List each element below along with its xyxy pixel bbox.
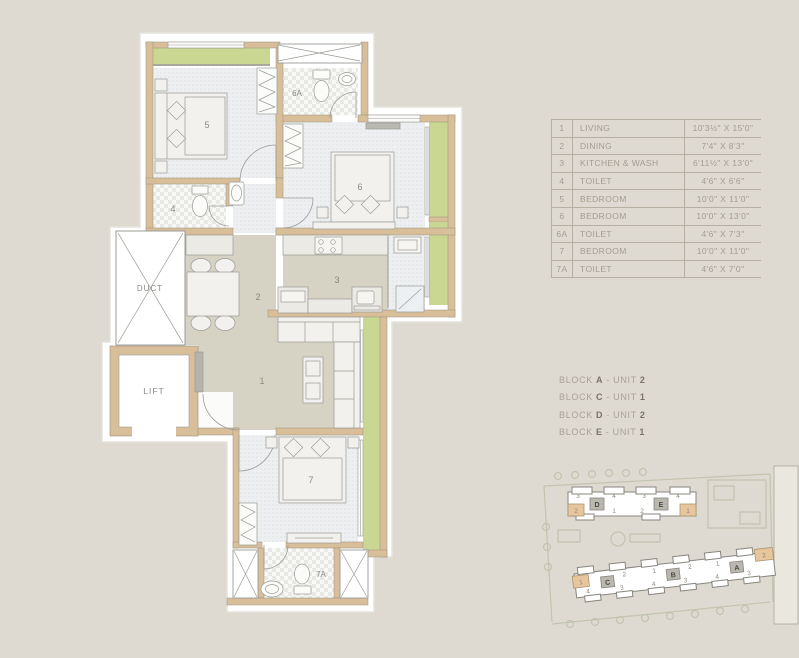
block-sep: - UNIT: [606, 392, 637, 402]
row-name: TOILET: [572, 261, 684, 278]
row-size: 6'11½" X 13'0": [684, 155, 761, 172]
unit-number: 2: [574, 508, 578, 515]
plan-sheet: LIFT DUCT: [0, 0, 799, 658]
dimension-table: 1LIVING10'3½" X 15'0" 2DINING7'4" X 8'3"…: [551, 119, 761, 278]
table-row: 6ATOILET4'6" X 7'3": [551, 225, 761, 243]
table-row: 4TOILET4'6" X 6'6": [551, 172, 761, 190]
row-name: BEDROOM: [572, 208, 684, 225]
row-no: 4: [552, 173, 572, 190]
block-line: BLOCKE- UNIT1: [559, 424, 649, 442]
block-unit: 1: [639, 427, 645, 437]
row-name: DINING: [572, 138, 684, 155]
row-name: BEDROOM: [572, 243, 684, 260]
block-unit: 2: [640, 375, 646, 385]
row-no: 2: [552, 138, 572, 155]
table-row: 6BEDROOM10'0" X 13'0": [551, 207, 761, 225]
row-size: 4'6" X 7'3": [684, 226, 761, 243]
table-row: 2DINING7'4" X 8'3": [551, 137, 761, 155]
label-living: 1: [259, 376, 264, 386]
block-letter-d: D: [594, 502, 599, 509]
unit-number: 2: [640, 508, 644, 515]
label-6a: 6A: [292, 89, 302, 98]
site-plan: 3 4 2 1 3 4 2 1 D E 1: [530, 452, 799, 648]
unit-number: 4: [612, 493, 616, 500]
block-letter: D: [596, 410, 603, 420]
unit-number: 3: [642, 493, 646, 500]
row-no: 7: [552, 243, 572, 260]
row-size: 10'3½" X 15'0": [684, 120, 761, 137]
row-size: 10'0" X 11'0": [684, 190, 761, 207]
block-letter-a: A: [734, 565, 740, 573]
duct-label: DUCT: [137, 284, 163, 293]
row-name: TOILET: [572, 226, 684, 243]
site-building-top: 3 4 2 1 3 4 2 1 D E: [568, 487, 696, 520]
block-word: BLOCK: [559, 375, 593, 385]
block-line: BLOCKD- UNIT2: [559, 406, 649, 424]
row-size: 4'6" X 6'6": [684, 173, 761, 190]
block-sep: - UNIT: [606, 375, 637, 385]
label-bed5: 5: [204, 120, 209, 130]
site-building-bottom: 1 2 1 2 1 2 4 3 4 3 4 3 C B A: [571, 545, 776, 603]
block-letter-e: E: [659, 502, 664, 509]
row-no: 6A: [552, 226, 572, 243]
duct: DUCT: [116, 231, 185, 345]
row-name: TOILET: [572, 173, 684, 190]
row-name: KITCHEN & WASH: [572, 155, 684, 172]
label-dining: 2: [255, 292, 260, 302]
row-name: LIVING: [572, 120, 684, 137]
row-no: 6: [552, 208, 572, 225]
block-unit-list: BLOCKA- UNIT2 BLOCKC- UNIT1 BLOCKD- UNIT…: [559, 371, 649, 441]
block-letter: C: [596, 392, 603, 402]
site-right-band: [774, 466, 798, 624]
table-row: 5BEDROOM10'0" X 11'0": [551, 189, 761, 207]
row-size: 10'0" X 13'0": [684, 208, 761, 225]
table-row: 7ATOILET4'6" X 7'0": [551, 260, 761, 279]
row-no: 7A: [552, 261, 572, 278]
unit-number: 1: [686, 508, 690, 515]
table-row: 7BEDROOM10'0" X 11'0": [551, 242, 761, 260]
label-bed6: 6: [357, 182, 362, 192]
floor-plan: LIFT DUCT: [95, 20, 490, 635]
row-no: 1: [552, 120, 572, 137]
block-unit: 2: [640, 410, 646, 420]
block-letter: E: [596, 427, 603, 437]
lift-label: LIFT: [143, 386, 164, 396]
block-word: BLOCK: [559, 410, 593, 420]
block-line: BLOCKA- UNIT2: [559, 371, 649, 389]
block-sep: - UNIT: [606, 410, 637, 420]
row-name: BEDROOM: [572, 190, 684, 207]
table-row: 1LIVING10'3½" X 15'0": [551, 119, 761, 137]
row-size: 7'4" X 8'3": [684, 138, 761, 155]
label-toilet4: 4: [170, 204, 175, 214]
block-word: BLOCK: [559, 392, 593, 402]
block-letter-c: C: [605, 579, 611, 587]
unit-number: 1: [612, 508, 616, 515]
row-no: 5: [552, 190, 572, 207]
row-size: 10'0" X 11'0": [684, 243, 761, 260]
block-sep: - UNIT: [606, 427, 637, 437]
unit-number: 4: [676, 493, 680, 500]
row-size: 4'6" X 7'0": [684, 261, 761, 278]
block-letter-b: B: [670, 572, 676, 580]
label-kitchen: 3: [334, 275, 339, 285]
table-row: 3KITCHEN & WASH6'11½" X 13'0": [551, 154, 761, 172]
unit-number: 3: [576, 493, 580, 500]
block-unit: 1: [640, 392, 646, 402]
block-letter: A: [596, 375, 603, 385]
block-line: BLOCKC- UNIT1: [559, 389, 649, 407]
block-word: BLOCK: [559, 427, 593, 437]
row-no: 3: [552, 155, 572, 172]
lift: LIFT: [110, 346, 198, 437]
label-7a: 7A: [316, 570, 326, 579]
label-bed7: 7: [308, 475, 313, 485]
